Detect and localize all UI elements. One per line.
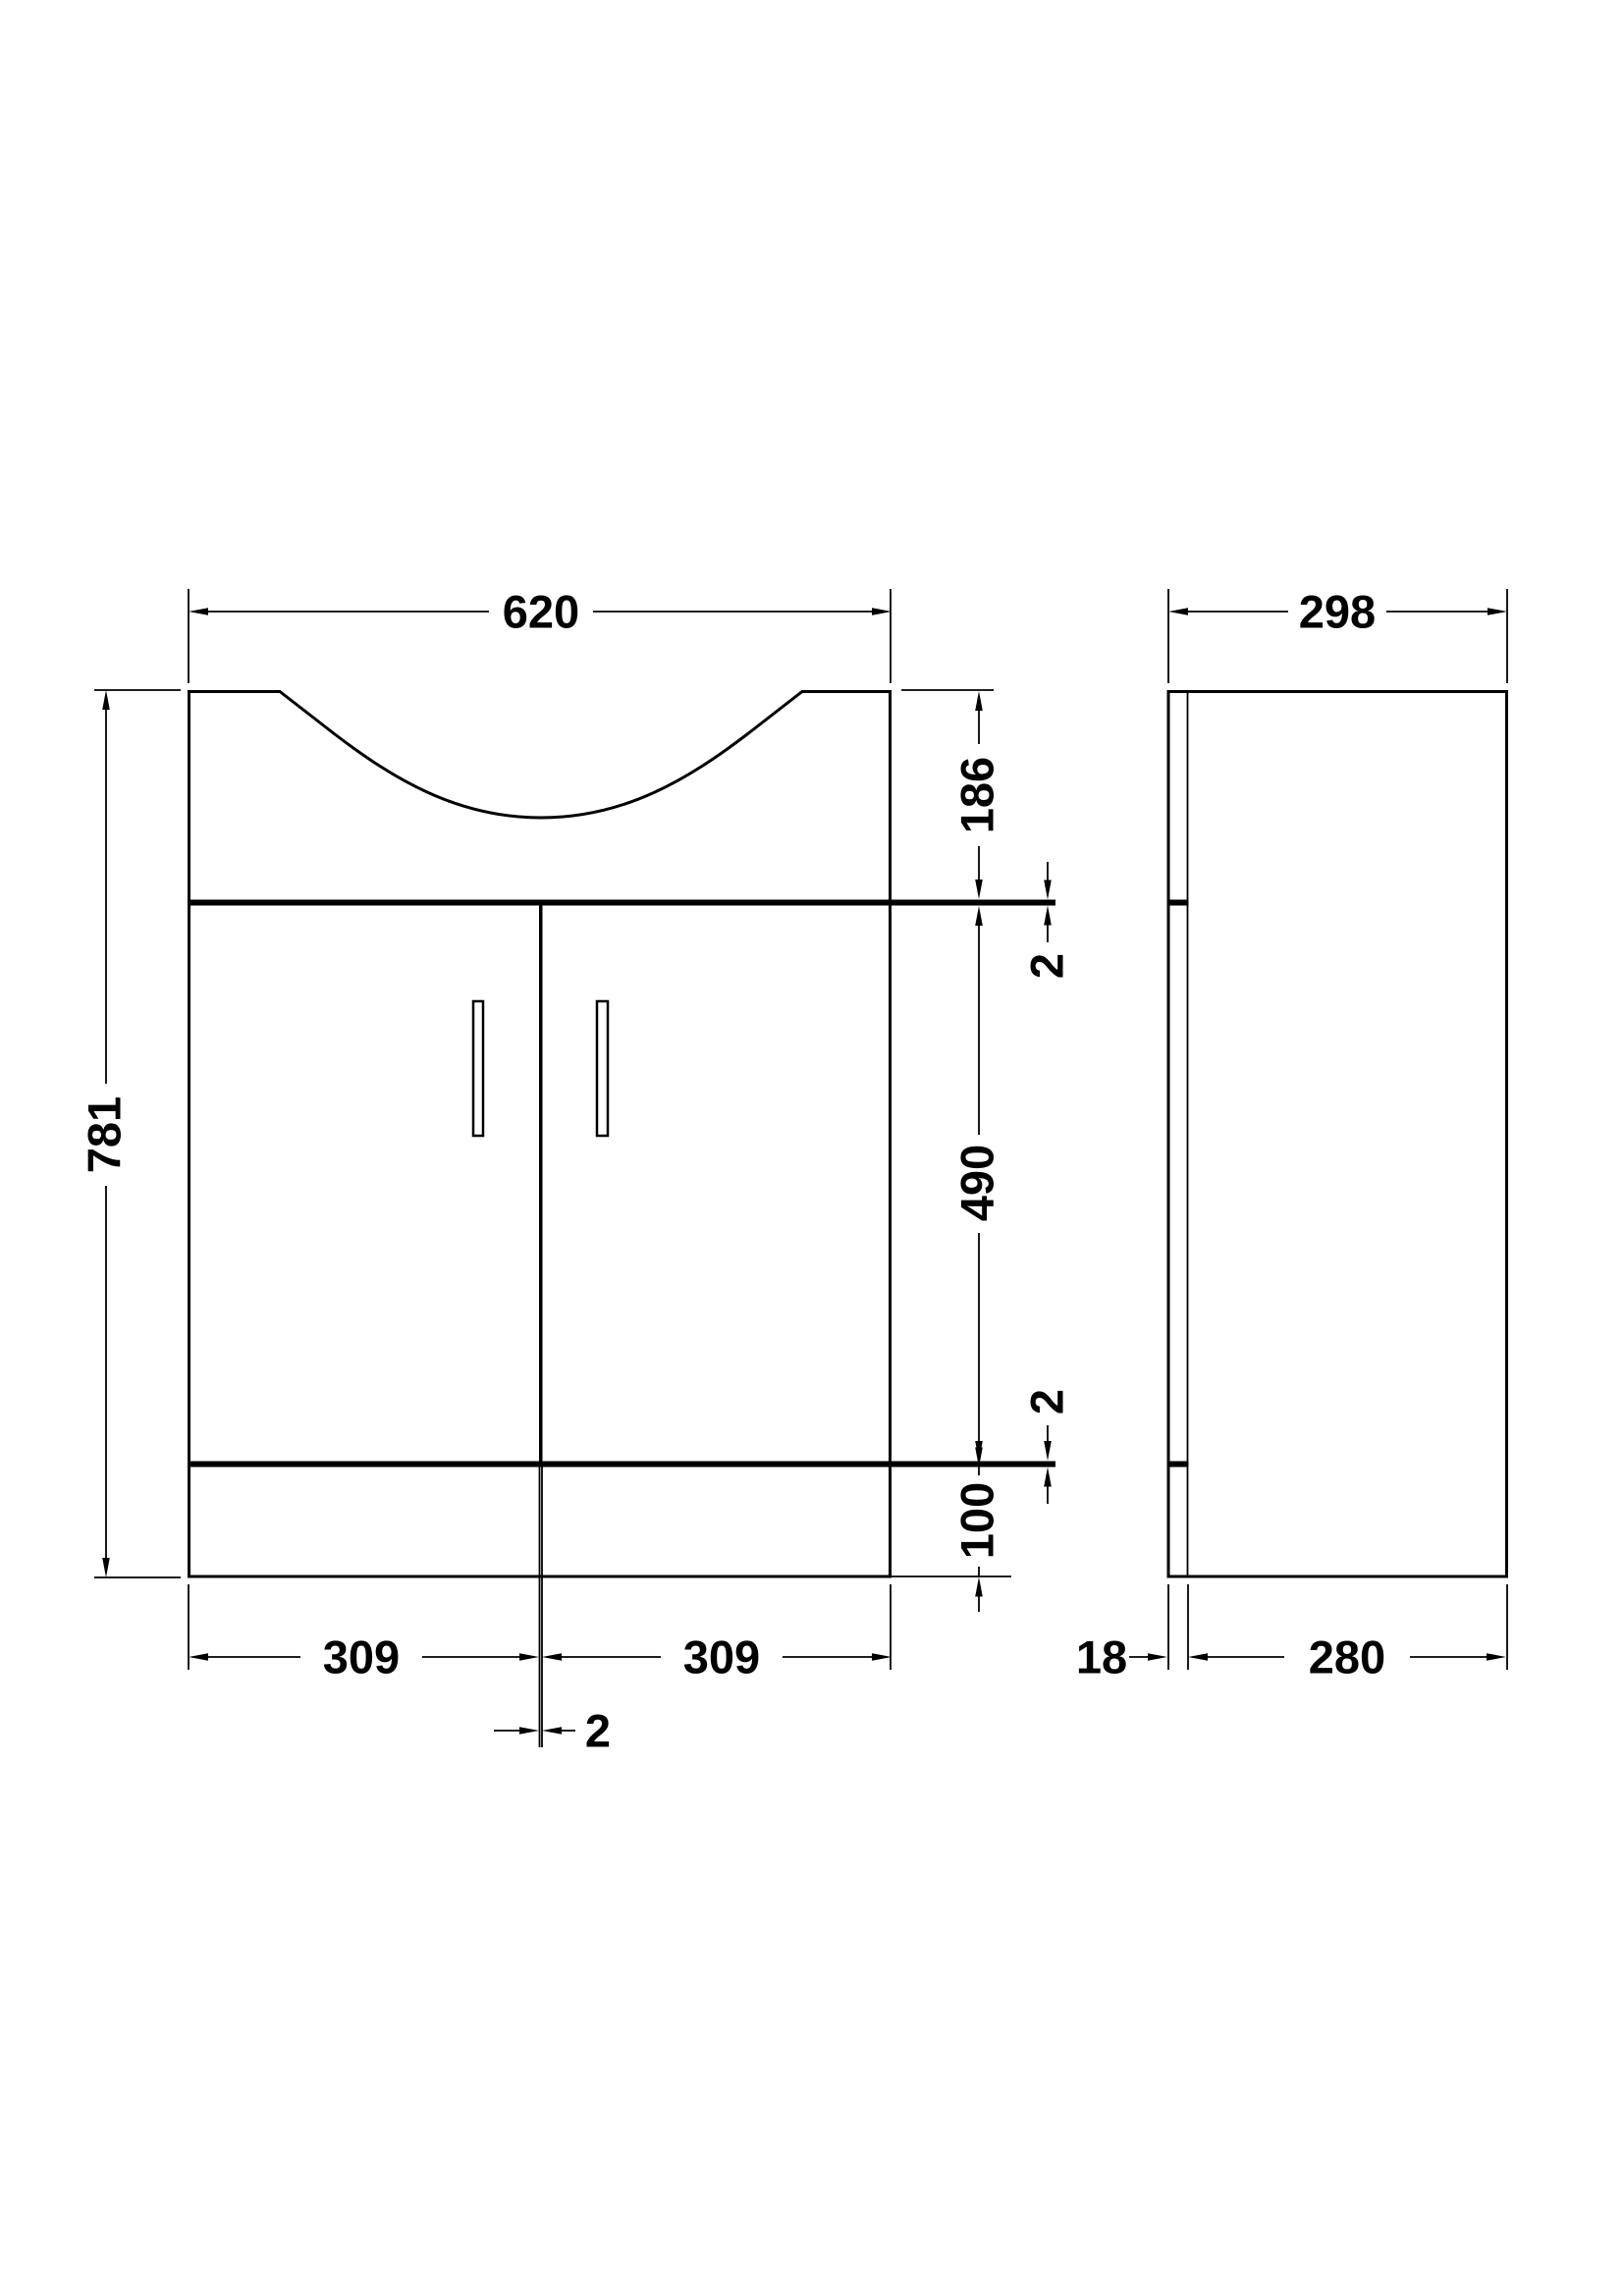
dim-basin-height-arrow-bottom	[975, 880, 983, 899]
dim-front-width-arrow-right	[872, 608, 892, 615]
counter-seam-line	[188, 900, 1055, 906]
dim-door-widths: 309 309	[189, 1467, 892, 1747]
dim-basin-height-label: 186	[951, 757, 1003, 833]
dim-body-depth-arrow-left	[1188, 1653, 1208, 1661]
dim-right-door-arrow-right	[872, 1653, 892, 1661]
dim-basin-height-arrow-top	[975, 691, 983, 711]
dim-front-width-arrow-left	[189, 608, 208, 615]
dim-side-depth: 298	[1168, 586, 1507, 684]
dim-front-width-label: 620	[503, 586, 579, 638]
dim-left-door-arrow-right	[519, 1653, 539, 1661]
dim-front-width: 620	[189, 586, 892, 684]
side-outline	[1168, 692, 1507, 1577]
dim-counter-gap-label: 2	[1021, 953, 1073, 979]
right-door-handle	[597, 1001, 608, 1136]
dim-plinth-gap-arrow-top	[1044, 1441, 1052, 1461]
dim-front-height-arrow-top	[102, 690, 110, 710]
dim-body-depth-label: 280	[1309, 1631, 1385, 1683]
dim-door-height-label: 490	[951, 1145, 1003, 1221]
dim-door-gap: 2	[494, 1705, 611, 1757]
dim-plinth-gap-label: 2	[1021, 1389, 1073, 1415]
dim-plinth-gap: 2	[1021, 1389, 1073, 1504]
dim-side-depth-label: 298	[1299, 586, 1376, 638]
dimensions: 620 298 781 186	[79, 586, 1508, 1757]
dim-front-height-arrow-bottom	[102, 1558, 110, 1577]
door-divider	[539, 905, 543, 1462]
dim-front-height: 781	[79, 690, 182, 1577]
dim-counter-gap-arrow-bottom	[1044, 906, 1052, 926]
dim-side-bottom: 18 280	[1076, 1584, 1507, 1683]
drawing-canvas: 620 298 781 186	[0, 0, 1623, 2296]
dim-right-door-label: 309	[683, 1631, 760, 1683]
dim-counter-gap-arrow-top	[1044, 881, 1052, 900]
dim-basin-height: 186	[901, 690, 1003, 899]
dim-body-depth-arrow-right	[1487, 1653, 1506, 1661]
door-bottom-seam-line	[188, 1462, 1055, 1468]
dim-door-height: 490	[951, 906, 1003, 1461]
vanity-technical-drawing: 620 298 781 186	[0, 0, 1623, 2296]
side-view	[1167, 691, 1507, 1576]
basin-curve-outline	[188, 692, 892, 819]
dim-plinth-gap-arrow-bottom	[1044, 1468, 1052, 1487]
dim-door-gap-label: 2	[585, 1705, 611, 1757]
dim-right-door-arrow-left	[542, 1653, 562, 1661]
front-view	[188, 690, 1055, 1577]
dim-left-door-arrow-left	[189, 1653, 208, 1661]
dim-back-panel-arrow	[1148, 1653, 1167, 1661]
dim-door-gap-arrow-left	[519, 1727, 539, 1735]
dim-side-depth-arrow-left	[1168, 608, 1188, 615]
dim-plinth-height: 100	[951, 1448, 1003, 1613]
dim-front-height-label: 781	[79, 1096, 131, 1173]
dim-counter-gap: 2	[1021, 862, 1073, 979]
dim-plinth-height-label: 100	[951, 1482, 1003, 1559]
dim-left-door-label: 309	[323, 1631, 400, 1683]
dim-plinth-height-arrow-bottom	[975, 1577, 983, 1597]
dim-door-gap-arrow-right	[542, 1727, 562, 1735]
left-door-handle	[473, 1001, 483, 1136]
dim-door-height-arrow-top	[975, 906, 983, 926]
dim-back-panel-label: 18	[1076, 1631, 1127, 1683]
side-plinth-seam	[1167, 1462, 1189, 1468]
dim-side-depth-arrow-right	[1488, 608, 1507, 615]
side-counter-seam	[1167, 900, 1189, 906]
